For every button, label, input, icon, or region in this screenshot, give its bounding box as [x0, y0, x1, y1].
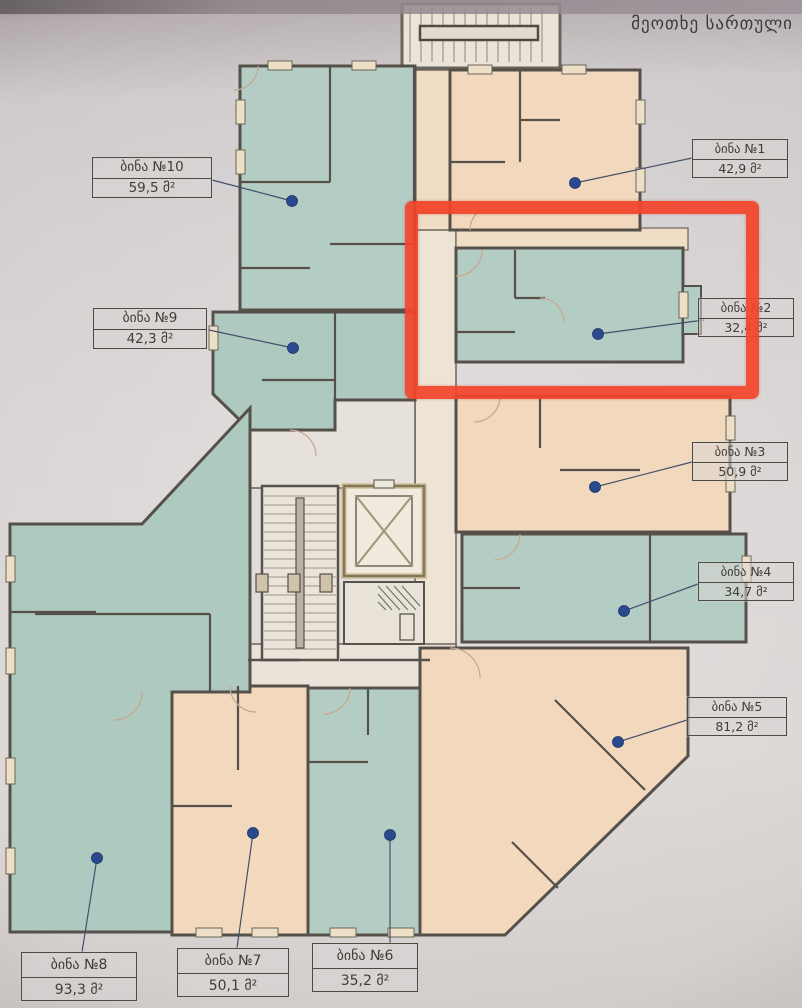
apartment-9-area: 42,3 მ²: [94, 330, 206, 349]
apartment-label-6: ბინა №6 35,2 მ²: [312, 943, 418, 992]
apartment-4-area: 34,7 მ²: [699, 583, 793, 601]
apartment-2-region: [456, 248, 701, 362]
apartment-label-7: ბინა №7 50,1 მ²: [177, 948, 289, 997]
apartment-2-number: ბინა №2: [699, 299, 793, 319]
apartment-label-1: ბინა №1 42,9 მ²: [692, 139, 788, 178]
apartment-5-number: ბინა №5: [688, 698, 786, 718]
apartment-6-number: ბინა №6: [313, 944, 417, 969]
apartment-2-area: 32,4 მ²: [699, 319, 793, 337]
apartment-label-2: ბინა №2 32,4 მ²: [698, 298, 794, 337]
floor-plan-photo: მეოთხე სართული ბინა №1 42,9 მ² ბინა №2 3…: [0, 0, 802, 1008]
apartment-3-region: [456, 396, 730, 532]
apartment-8-number: ბინა №8: [22, 953, 136, 978]
apartment-3-number: ბინა №3: [693, 443, 787, 463]
apartment-1-region: [450, 70, 640, 230]
apartment-5-area: 81,2 მ²: [688, 718, 786, 736]
apartment-label-4: ბინა №4 34,7 მ²: [698, 562, 794, 601]
apartment-label-5: ბინა №5 81,2 მ²: [687, 697, 787, 736]
floor-plan-drawing: [0, 0, 802, 1008]
top-staircase: [402, 4, 560, 68]
core-utility-room: [344, 582, 424, 644]
apartment-8-area: 93,3 მ²: [22, 978, 136, 1000]
apartment-1-number: ბინა №1: [693, 140, 787, 160]
apartment-label-3: ბინა №3 50,9 მ²: [692, 442, 788, 481]
apartment-7-number: ბინა №7: [178, 949, 288, 974]
apartment-5-region: [420, 648, 688, 935]
apartment-6-region: [308, 688, 420, 935]
apartment-label-10: ბინა №10 59,5 მ²: [92, 157, 212, 198]
apartment-3-area: 50,9 მ²: [693, 463, 787, 481]
apartment-4-number: ბინა №4: [699, 563, 793, 583]
apartment-10-region: [240, 66, 415, 310]
core-staircase: [262, 486, 338, 660]
apartment-1-area: 42,9 მ²: [693, 160, 787, 178]
apartment-9-number: ბინა №9: [94, 309, 206, 330]
elevator-shaft: [344, 480, 424, 576]
apartment-7-region: [172, 686, 308, 935]
apartment-10-area: 59,5 მ²: [93, 179, 211, 198]
apartment-label-8: ბინა №8 93,3 მ²: [21, 952, 137, 1001]
apartment-10-number: ბინა №10: [93, 158, 211, 179]
apartment-label-9: ბინა №9 42,3 მ²: [93, 308, 207, 349]
apartment-7-area: 50,1 მ²: [178, 974, 288, 996]
apartment-6-area: 35,2 მ²: [313, 969, 417, 991]
floor-title: მეოთხე სართული: [583, 14, 793, 34]
